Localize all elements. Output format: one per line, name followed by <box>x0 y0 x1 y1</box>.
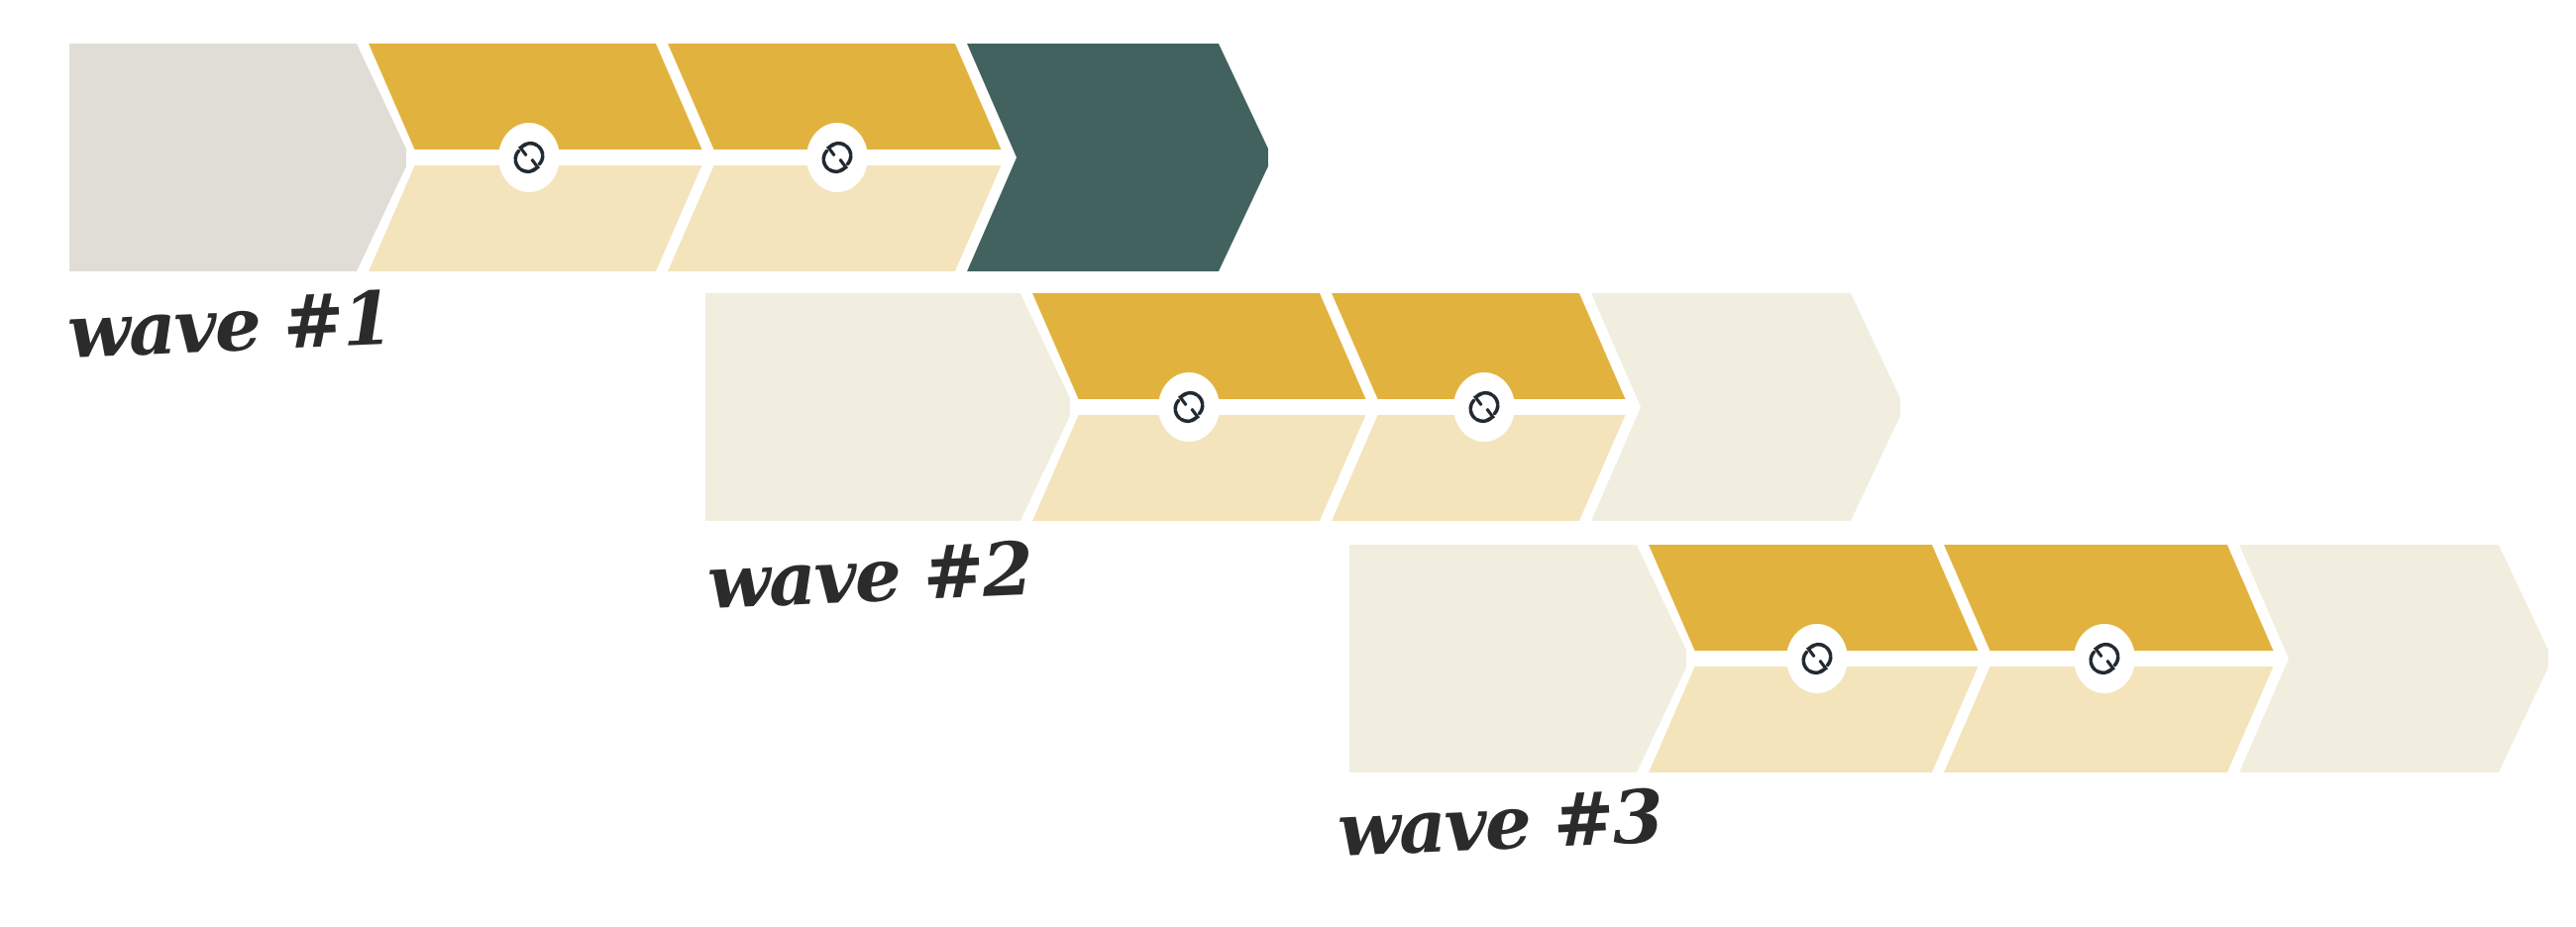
sync-icon-circle <box>1158 372 1220 442</box>
sync-icon-circle <box>1786 624 1848 693</box>
wave-1-label: wave #1 <box>65 279 392 374</box>
sync-icon-circle <box>806 123 868 192</box>
sync-icon-circle <box>2074 624 2135 693</box>
wave-3-segment-4-end <box>2239 545 2548 772</box>
wave-1-segment-1-start <box>69 44 406 271</box>
diagram-canvas <box>0 0 2576 927</box>
sync-icon-circle <box>1453 372 1515 442</box>
wave-chevron-diagram: wave #1 wave #2 wave #3 <box>0 0 2576 927</box>
wave-3-segment-1-start <box>1349 545 1686 772</box>
sync-icon-circle <box>498 123 560 192</box>
wave-2-segment-4-end <box>1591 293 1900 521</box>
wave-2-segment-1-start <box>705 293 1070 521</box>
wave-2-label: wave #2 <box>705 530 1032 625</box>
wave-3-label: wave #3 <box>1336 777 1663 873</box>
wave-1-segment-4-end <box>967 44 1268 271</box>
